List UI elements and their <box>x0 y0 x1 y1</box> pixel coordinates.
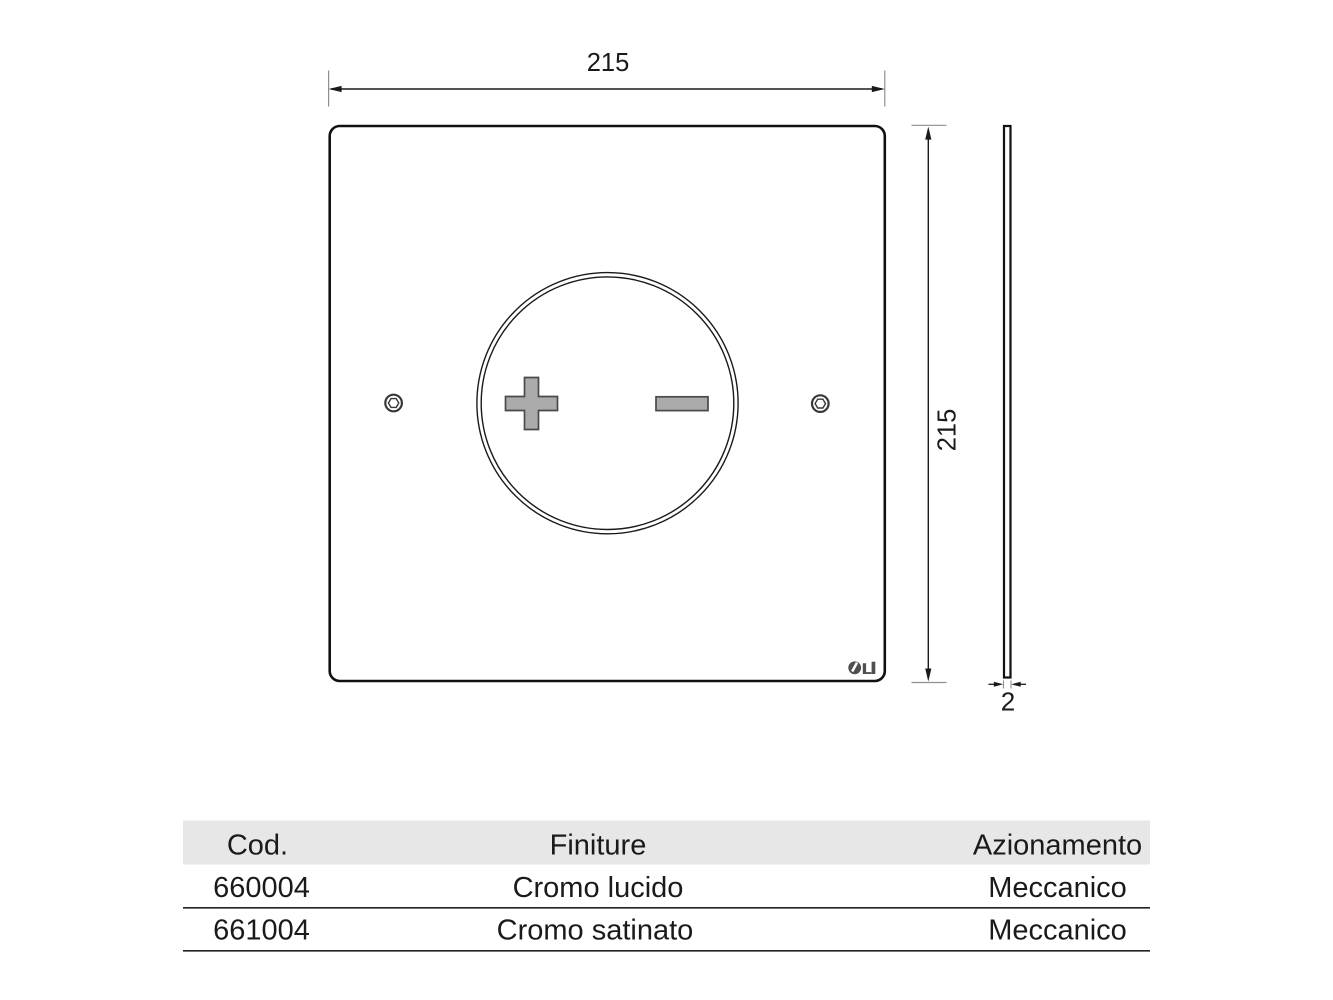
svg-text:661004: 661004 <box>213 915 310 947</box>
svg-text:2: 2 <box>1001 687 1015 717</box>
svg-text:Cod.: Cod. <box>227 830 288 862</box>
svg-text:Meccanico: Meccanico <box>988 872 1127 904</box>
svg-text:660004: 660004 <box>213 872 310 904</box>
svg-text:Azionamento: Azionamento <box>973 830 1142 862</box>
svg-text:Meccanico: Meccanico <box>988 915 1127 947</box>
svg-text:Cromo lucido: Cromo lucido <box>513 872 684 904</box>
svg-text:215: 215 <box>934 409 962 452</box>
svg-text:Finiture: Finiture <box>550 830 647 862</box>
svg-text:Cromo satinato: Cromo satinato <box>497 915 694 947</box>
svg-text:215: 215 <box>587 49 630 77</box>
